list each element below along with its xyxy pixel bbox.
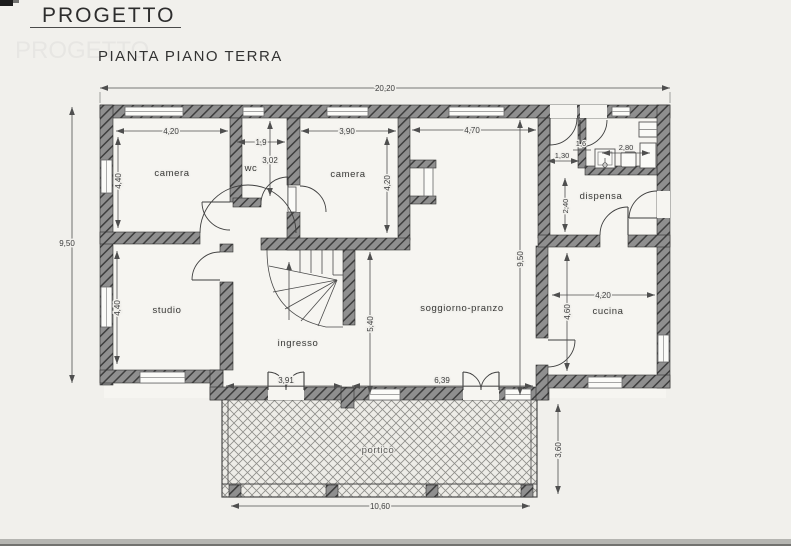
wall-studio-right-lower [220,282,233,370]
room-label-dispensa: dispensa [580,191,623,202]
wall-studio-right-upper [220,244,233,252]
wall-stair-top [261,238,410,250]
wall-camera-nw-right [230,118,242,202]
dim-camera-nw-height: 4,40 [114,173,123,189]
portico-pillar-2 [326,485,338,497]
dim-total-width: 20,20 [375,84,396,93]
wall-soggiorno-right-upper [538,118,550,238]
floor-plan-canvas: PROGETTO PIANTA PIANO TERRA PROGETTO PIA… [0,0,791,546]
window-bottom-studio [140,372,185,383]
wall-wc-bottom [233,198,261,207]
dim-studio-height: 4,40 [113,300,122,316]
dim-hall-width: 1,6 [576,139,586,148]
room-label-wc: wc [244,163,258,174]
chimney-flue [424,168,433,196]
wall-stair-right [343,250,355,325]
opening-hall-door [550,105,577,118]
chimney-stub-bottom [410,196,436,204]
dim-camera-nw-width: 4,20 [163,127,179,136]
scan-corner-mark2 [13,0,19,3]
window-left-studio [101,287,112,327]
opening-bagno-door [580,105,607,118]
wall-camera-n-left-upper [287,118,300,185]
room-label-cucina: cucina [592,306,623,317]
dim-bagno-width: 2,80 [619,143,634,152]
wall-cucina-left-lower [536,365,548,400]
window-top-camera-nw [125,107,183,116]
scan-corner-mark [0,0,13,6]
portico-pillar-3 [426,485,438,497]
dim-wc-width: 1,9 [255,138,267,147]
window-bottom-ingresso [369,389,400,400]
page-title: PROGETTO [42,4,175,27]
dim-hall-depth: 1,30 [555,151,570,160]
window-bottom-soggiorno [505,389,531,400]
cabinet-fixture [640,143,656,168]
dim-camera-n-width: 3,90 [339,127,355,136]
wall-left [100,105,113,385]
portico-pillar-1 [229,485,241,497]
window-top-soggiorno [449,107,504,116]
page-subtitle: PIANTA PIANO TERRA [98,48,283,65]
window-right-cucina [658,335,669,362]
room-label-studio: studio [153,305,182,316]
wall-dispensa-bottom-right [628,235,670,247]
pillar-center-bottom [341,388,354,408]
dim-dispensa-height: 2,40 [561,199,570,214]
room-label-camera-nw: camera [154,168,189,179]
window-top-camera-n [327,107,368,116]
basin-fixture [621,152,636,167]
scanned-floor-plan-sheet: PROGETTO PIANTA PIANO TERRA PROGETTO PIA… [0,0,791,546]
window-top-wc [243,107,264,116]
dim-camera-n-height: 4,20 [383,175,392,191]
chimney-stub-top [410,160,436,168]
room-label-ingresso: ingresso [278,338,319,349]
dim-portico-depth: 3,60 [554,442,563,458]
dim-wc-height: 3,02 [262,156,278,165]
wall-mid-left [100,232,200,244]
dim-soggiorno-height: 9,50 [516,251,525,267]
room-label-soggiorno: soggiorno-pranzo [420,303,504,314]
room-label-camera-n: camera [330,169,365,180]
wall-camera-n-right [398,118,410,240]
window-top-hall [612,107,630,116]
opening-rear-door [657,191,670,218]
dim-portico-left-span: 3,91 [278,376,294,385]
dim-portico-right-span: 6,39 [434,376,450,385]
wall-dispensa-bottom-left [538,235,600,247]
portico-pillar-4 [521,485,533,497]
window-left-camera-nw [101,160,112,193]
dim-total-height: 9,50 [59,239,75,248]
dim-cucina-width: 4,20 [595,291,611,300]
dim-soggiorno-width: 4,70 [464,126,480,135]
window-bottom-cucina [588,377,622,388]
dim-cucina-height: 4,60 [563,304,572,320]
dim-portico-width: 10,60 [370,502,391,511]
wall-cucina-left [536,246,548,338]
room-label-portico: portico [362,445,395,456]
dim-ingresso-height: 5,40 [366,316,375,332]
